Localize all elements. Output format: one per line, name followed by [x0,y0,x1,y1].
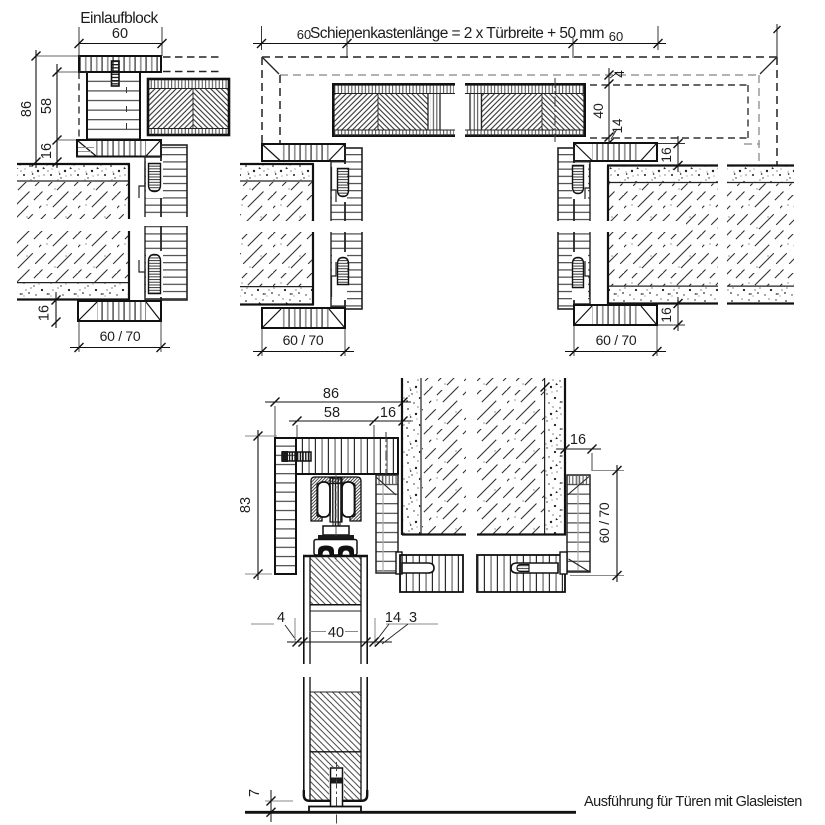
svg-text:58: 58 [324,405,340,421]
svg-text:16: 16 [380,405,396,421]
svg-text:58: 58 [39,98,55,114]
svg-text:16: 16 [39,143,55,159]
svg-text:86: 86 [19,101,35,117]
svg-text:Ausführung für Türen mit Glasl: Ausführung für Türen mit Glasleisten [584,794,802,810]
svg-text:7: 7 [247,789,263,797]
svg-text:60 / 70: 60 / 70 [596,502,612,543]
svg-text:14: 14 [385,610,401,626]
svg-text:86: 86 [323,386,339,402]
svg-text:60 / 70: 60 / 70 [283,332,324,348]
svg-text:83: 83 [238,497,254,513]
svg-text:60 / 70: 60 / 70 [100,328,141,344]
svg-text:60: 60 [297,27,311,42]
svg-text:16: 16 [570,432,586,448]
svg-text:60: 60 [609,29,623,44]
svg-text:14: 14 [610,118,625,134]
svg-text:60: 60 [112,26,128,42]
svg-text:60 / 70: 60 / 70 [596,332,637,348]
svg-text:40: 40 [590,103,606,119]
svg-text:16: 16 [658,147,674,163]
svg-text:40: 40 [328,625,344,641]
svg-text:16: 16 [658,307,674,323]
svg-text:3: 3 [409,610,417,626]
svg-text:4: 4 [277,610,285,626]
svg-text:4: 4 [612,70,627,78]
svg-text:Einlaufblock: Einlaufblock [80,10,158,27]
svg-text:Schienenkastenlänge = 2 x Türb: Schienenkastenlänge = 2 x Türbreite + 50… [310,25,604,42]
svg-text:16: 16 [37,305,53,321]
